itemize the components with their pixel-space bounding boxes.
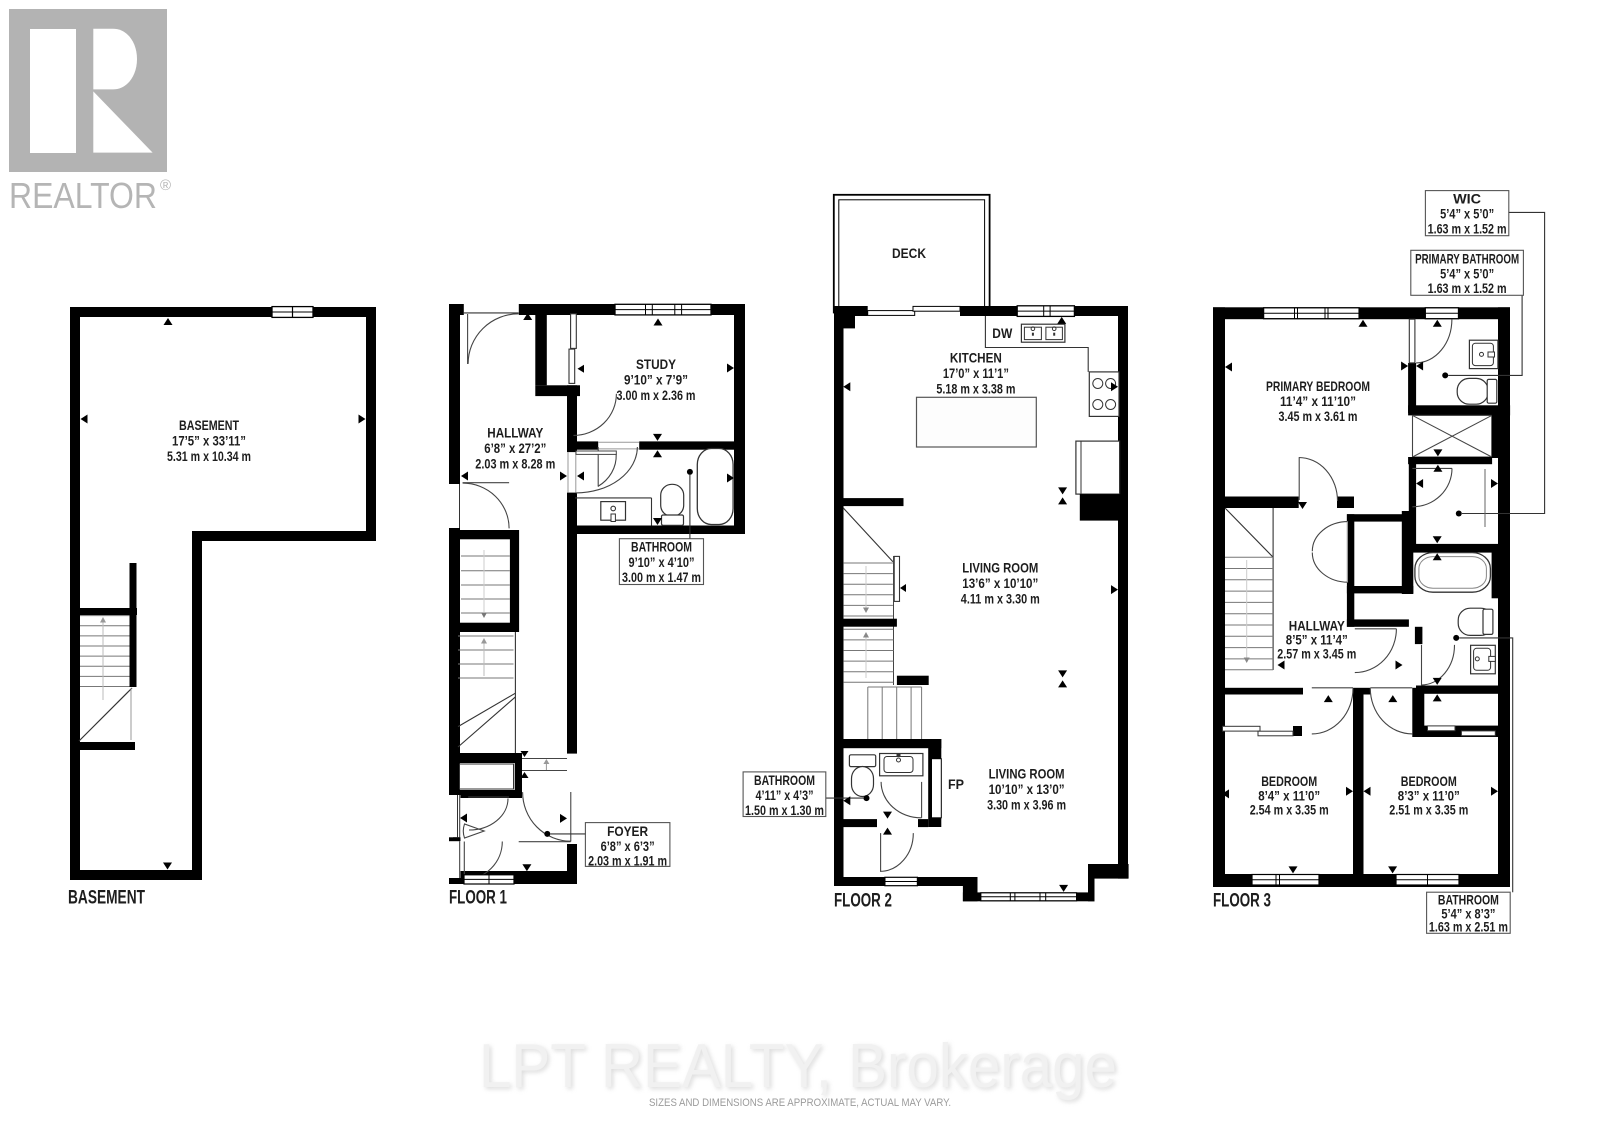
svg-text:5’4” x 5’0”: 5’4” x 5’0”	[1440, 266, 1494, 281]
svg-text:HALLWAY: HALLWAY	[487, 426, 543, 441]
svg-text:PRIMARY BEDROOM: PRIMARY BEDROOM	[1266, 379, 1370, 394]
svg-text:3.45 m x 3.61 m: 3.45 m x 3.61 m	[1279, 409, 1358, 424]
svg-text:8’4” x 11’0”: 8’4” x 11’0”	[1258, 789, 1320, 804]
svg-text:BATHROOM: BATHROOM	[631, 540, 692, 555]
svg-text:1.63 m x 1.52 m: 1.63 m x 1.52 m	[1428, 281, 1507, 296]
svg-text:FP: FP	[948, 777, 964, 792]
svg-text:PRIMARY BATHROOM: PRIMARY BATHROOM	[1415, 251, 1519, 266]
svg-text:4’11” x 4’3”: 4’11” x 4’3”	[756, 788, 814, 803]
svg-text:BASEMENT: BASEMENT	[179, 418, 239, 433]
svg-text:HALLWAY: HALLWAY	[1289, 619, 1345, 634]
svg-text:LPT REALTY, Brokerage: LPT REALTY, Brokerage	[479, 1032, 1117, 1101]
svg-text:FOYER: FOYER	[607, 824, 648, 839]
svg-text:BEDROOM: BEDROOM	[1401, 774, 1457, 789]
svg-text:KITCHEN: KITCHEN	[950, 351, 1002, 366]
svg-text:9’10” x 4’10”: 9’10” x 4’10”	[629, 555, 695, 570]
svg-text:11’4” x 11’10”: 11’4” x 11’10”	[1280, 394, 1356, 409]
svg-text:®: ®	[160, 177, 171, 194]
svg-text:STUDY: STUDY	[636, 357, 676, 372]
svg-text:1.63 m x 2.51 m: 1.63 m x 2.51 m	[1429, 920, 1508, 935]
svg-text:FLOOR 3: FLOOR 3	[1213, 890, 1271, 912]
svg-text:DW: DW	[992, 326, 1013, 341]
svg-text:5.31 m x 10.34 m: 5.31 m x 10.34 m	[167, 449, 251, 464]
svg-text:13’6” x 10’10”: 13’6” x 10’10”	[962, 576, 1038, 591]
svg-text:17’0” x 11’1”: 17’0” x 11’1”	[943, 366, 1009, 381]
svg-text:2.54 m x 3.35 m: 2.54 m x 3.35 m	[1250, 803, 1329, 818]
svg-text:8’5” x 11’4”: 8’5” x 11’4”	[1286, 633, 1348, 648]
svg-text:1.63 m x 1.52 m: 1.63 m x 1.52 m	[1428, 221, 1507, 236]
svg-text:5’4” x 5’0”: 5’4” x 5’0”	[1440, 207, 1494, 222]
svg-text:LIVING ROOM: LIVING ROOM	[962, 561, 1038, 576]
svg-text:3.30 m x 3.96 m: 3.30 m x 3.96 m	[987, 798, 1066, 813]
svg-text:3.00 m x 2.36 m: 3.00 m x 2.36 m	[617, 388, 696, 403]
svg-text:FLOOR 1: FLOOR 1	[449, 887, 507, 909]
svg-text:5.18 m x 3.38 m: 5.18 m x 3.38 m	[936, 382, 1015, 397]
svg-text:DECK: DECK	[892, 246, 926, 261]
svg-text:2.57 m x 3.45 m: 2.57 m x 3.45 m	[1277, 647, 1356, 662]
svg-text:SIZES AND DIMENSIONS ARE APPRO: SIZES AND DIMENSIONS ARE APPROXIMATE, AC…	[649, 1097, 951, 1109]
svg-text:BEDROOM: BEDROOM	[1261, 774, 1317, 789]
svg-text:BATHROOM: BATHROOM	[754, 773, 815, 788]
svg-text:2.03 m x 8.28 m: 2.03 m x 8.28 m	[475, 457, 555, 472]
svg-text:FLOOR 2: FLOOR 2	[834, 890, 892, 912]
svg-text:6’8” x 27’2”: 6’8” x 27’2”	[484, 441, 546, 456]
svg-text:17’5” x 33’11”: 17’5” x 33’11”	[172, 434, 246, 449]
svg-text:BATHROOM: BATHROOM	[1438, 893, 1499, 908]
svg-text:3.00 m x 1.47 m: 3.00 m x 1.47 m	[622, 570, 701, 585]
svg-text:2.51 m x 3.35 m: 2.51 m x 3.35 m	[1389, 803, 1468, 818]
svg-text:BASEMENT: BASEMENT	[68, 887, 145, 909]
svg-text:2.03 m x 1.91 m: 2.03 m x 1.91 m	[588, 854, 667, 869]
svg-text:WIC: WIC	[1453, 192, 1481, 207]
svg-text:REALTOR: REALTOR	[9, 175, 157, 216]
svg-text:10’10” x 13’0”: 10’10” x 13’0”	[989, 782, 1065, 797]
svg-text:LIVING ROOM: LIVING ROOM	[989, 767, 1065, 782]
svg-text:1.50 m x 1.30 m: 1.50 m x 1.30 m	[745, 803, 824, 818]
svg-text:9’10” x 7’9”: 9’10” x 7’9”	[624, 373, 688, 388]
svg-text:6’8” x 6’3”: 6’8” x 6’3”	[601, 839, 655, 854]
svg-text:4.11 m x 3.30 m: 4.11 m x 3.30 m	[961, 592, 1040, 607]
svg-text:8’3” x 11’0”: 8’3” x 11’0”	[1398, 789, 1460, 804]
